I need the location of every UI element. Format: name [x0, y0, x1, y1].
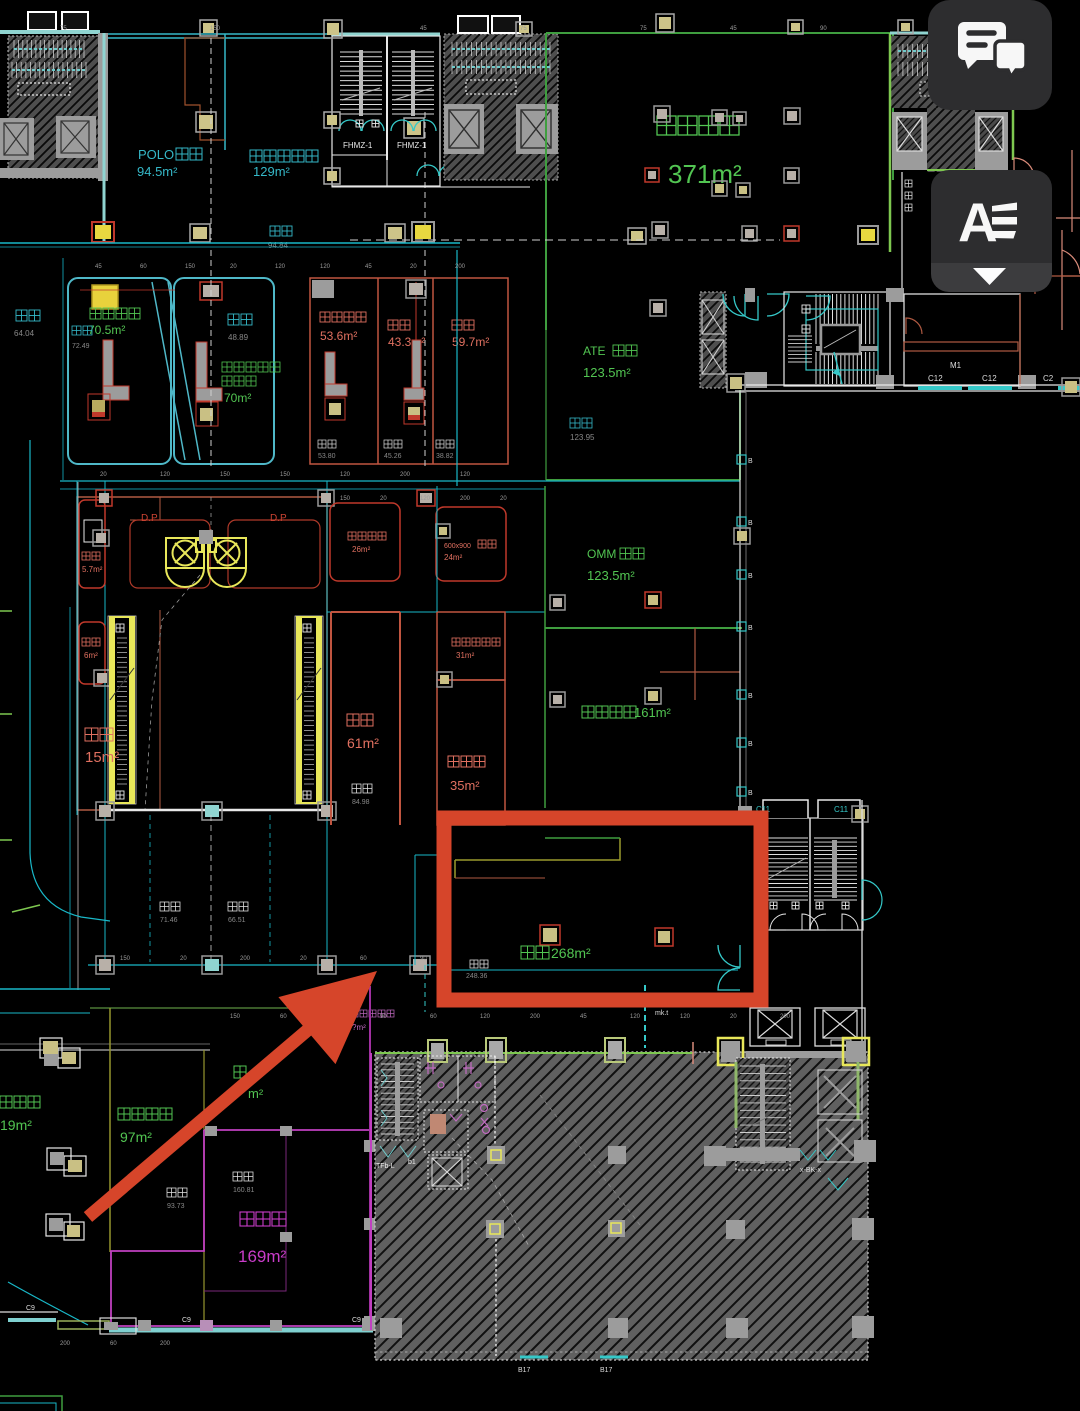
svg-text:84.98: 84.98: [352, 799, 370, 806]
svg-text:FHMZ-1: FHMZ-1: [397, 141, 427, 150]
svg-text:150: 150: [220, 472, 231, 478]
svg-text:x-BK-x: x-BK-x: [800, 1167, 822, 1174]
svg-text:60: 60: [110, 1341, 117, 1347]
svg-text:200: 200: [400, 472, 411, 478]
svg-text:20: 20: [380, 496, 387, 502]
svg-text:B: B: [748, 520, 753, 527]
svg-text:61m²: 61m²: [347, 735, 379, 751]
svg-text:60: 60: [430, 1014, 437, 1020]
svg-text:C11: C11: [834, 805, 849, 814]
svg-text:150: 150: [280, 472, 291, 478]
svg-text:371m²: 371m²: [668, 159, 742, 189]
svg-text:120: 120: [480, 1014, 491, 1020]
svg-text:D.P: D.P: [141, 513, 158, 524]
svg-text:75: 75: [520, 26, 527, 32]
svg-text:B: B: [748, 790, 753, 797]
svg-text:120: 120: [420, 496, 431, 502]
svg-text:B: B: [748, 458, 753, 465]
svg-text:35m²: 35m²: [450, 778, 480, 793]
svg-text:200: 200: [240, 956, 251, 962]
svg-text:20: 20: [180, 956, 187, 962]
svg-text:60: 60: [140, 264, 147, 270]
svg-text:120: 120: [460, 472, 471, 478]
svg-text:169m²: 169m²: [238, 1247, 287, 1266]
svg-text:160.81: 160.81: [233, 1187, 255, 1194]
svg-text:B17: B17: [518, 1367, 531, 1374]
svg-text:64.04: 64.04: [14, 329, 35, 338]
svg-text:A: A: [958, 191, 998, 253]
svg-text:75: 75: [60, 26, 67, 32]
svg-text:31m²: 31m²: [456, 651, 475, 660]
svg-text:120: 120: [160, 472, 171, 478]
svg-text:59.7m²: 59.7m²: [452, 335, 489, 349]
svg-text:B: B: [748, 741, 753, 748]
svg-text:161m²: 161m²: [634, 705, 672, 720]
svg-text:B: B: [748, 625, 753, 632]
svg-text:mk.t: mk.t: [655, 1010, 668, 1017]
svg-text:129m²: 129m²: [253, 164, 291, 179]
svg-text:b1: b1: [408, 1159, 416, 1166]
svg-text:38.82: 38.82: [436, 453, 454, 460]
svg-text:C2: C2: [1043, 374, 1054, 383]
svg-text:123.5m²: 123.5m²: [583, 365, 631, 380]
svg-text:90: 90: [420, 956, 427, 962]
svg-text:m²: m²: [248, 1086, 264, 1101]
svg-text:71.46: 71.46: [160, 917, 178, 924]
svg-text:20: 20: [100, 472, 107, 478]
svg-text:C9: C9: [182, 1317, 191, 1324]
svg-text:97m²: 97m²: [120, 1129, 152, 1145]
svg-text:66.51: 66.51: [228, 917, 246, 924]
svg-text:C9: C9: [352, 1317, 361, 1324]
svg-text:D.P: D.P: [270, 513, 287, 524]
svg-text:20: 20: [230, 264, 237, 270]
svg-text:200: 200: [455, 264, 466, 270]
svg-text:120: 120: [275, 264, 286, 270]
svg-text:?m²: ?m²: [352, 1023, 366, 1032]
svg-text:72.49: 72.49: [72, 343, 90, 350]
svg-text:C9: C9: [26, 1305, 35, 1312]
svg-text:FHMZ-1: FHMZ-1: [343, 141, 373, 150]
svg-text:120: 120: [680, 1014, 691, 1020]
svg-text:150: 150: [210, 26, 221, 32]
svg-text:TFb-L: TFb-L: [376, 1163, 395, 1170]
svg-text:60: 60: [360, 956, 367, 962]
svg-text:90: 90: [820, 26, 827, 32]
svg-text:45: 45: [420, 26, 427, 32]
svg-text:120: 120: [340, 472, 351, 478]
svg-text:53.80: 53.80: [318, 453, 336, 460]
svg-text:48.89: 48.89: [228, 333, 249, 342]
svg-text:200: 200: [530, 1014, 541, 1020]
svg-text:26m²: 26m²: [352, 545, 371, 554]
svg-text:150: 150: [120, 956, 131, 962]
svg-text:45: 45: [730, 26, 737, 32]
svg-text:B17: B17: [600, 1367, 613, 1374]
svg-text:20: 20: [300, 956, 307, 962]
svg-text:150: 150: [185, 264, 196, 270]
svg-text:200: 200: [60, 1341, 71, 1347]
svg-text:120: 120: [630, 1014, 641, 1020]
svg-text:5.7m²: 5.7m²: [82, 565, 103, 574]
svg-text:20: 20: [730, 1014, 737, 1020]
svg-text:45: 45: [95, 264, 102, 270]
svg-text:6m²: 6m²: [84, 651, 98, 660]
svg-text:15m²: 15m²: [85, 749, 119, 766]
svg-text:200: 200: [780, 1014, 791, 1020]
svg-text:94.5m²: 94.5m²: [137, 164, 178, 179]
svg-text:93.73: 93.73: [167, 1203, 185, 1210]
svg-text:200: 200: [460, 496, 471, 502]
svg-text:B: B: [748, 573, 753, 580]
svg-text:45: 45: [580, 1014, 587, 1020]
svg-text:OMM: OMM: [587, 547, 616, 561]
svg-text:B: B: [748, 693, 753, 700]
svg-text:20: 20: [500, 496, 507, 502]
svg-text:POLO: POLO: [138, 147, 174, 162]
svg-text:120: 120: [320, 264, 331, 270]
svg-text:19m²: 19m²: [0, 1117, 32, 1133]
svg-text:123.5m²: 123.5m²: [587, 568, 635, 583]
svg-text:20: 20: [410, 264, 417, 270]
svg-text:600x900: 600x900: [444, 543, 471, 550]
svg-text:123.95: 123.95: [570, 433, 595, 442]
svg-text:M1: M1: [950, 361, 962, 370]
svg-text:150: 150: [230, 1014, 241, 1020]
svg-text:150: 150: [340, 496, 351, 502]
svg-text:C12: C12: [928, 374, 943, 383]
svg-text:45: 45: [365, 264, 372, 270]
svg-text:70m²: 70m²: [224, 391, 251, 405]
svg-text:200: 200: [160, 1341, 171, 1347]
svg-text:248.36: 248.36: [466, 973, 488, 980]
svg-text:C12: C12: [982, 374, 997, 383]
svg-text:60: 60: [280, 1014, 287, 1020]
svg-text:90: 90: [380, 1014, 387, 1020]
svg-text:24m²: 24m²: [444, 553, 463, 562]
svg-text:70.5m²: 70.5m²: [88, 323, 125, 337]
svg-text:ATE: ATE: [583, 344, 605, 358]
svg-text:75: 75: [640, 26, 647, 32]
svg-text:53.6m²: 53.6m²: [320, 329, 357, 343]
svg-text:268m²: 268m²: [551, 945, 591, 961]
svg-text:45.26: 45.26: [384, 453, 402, 460]
